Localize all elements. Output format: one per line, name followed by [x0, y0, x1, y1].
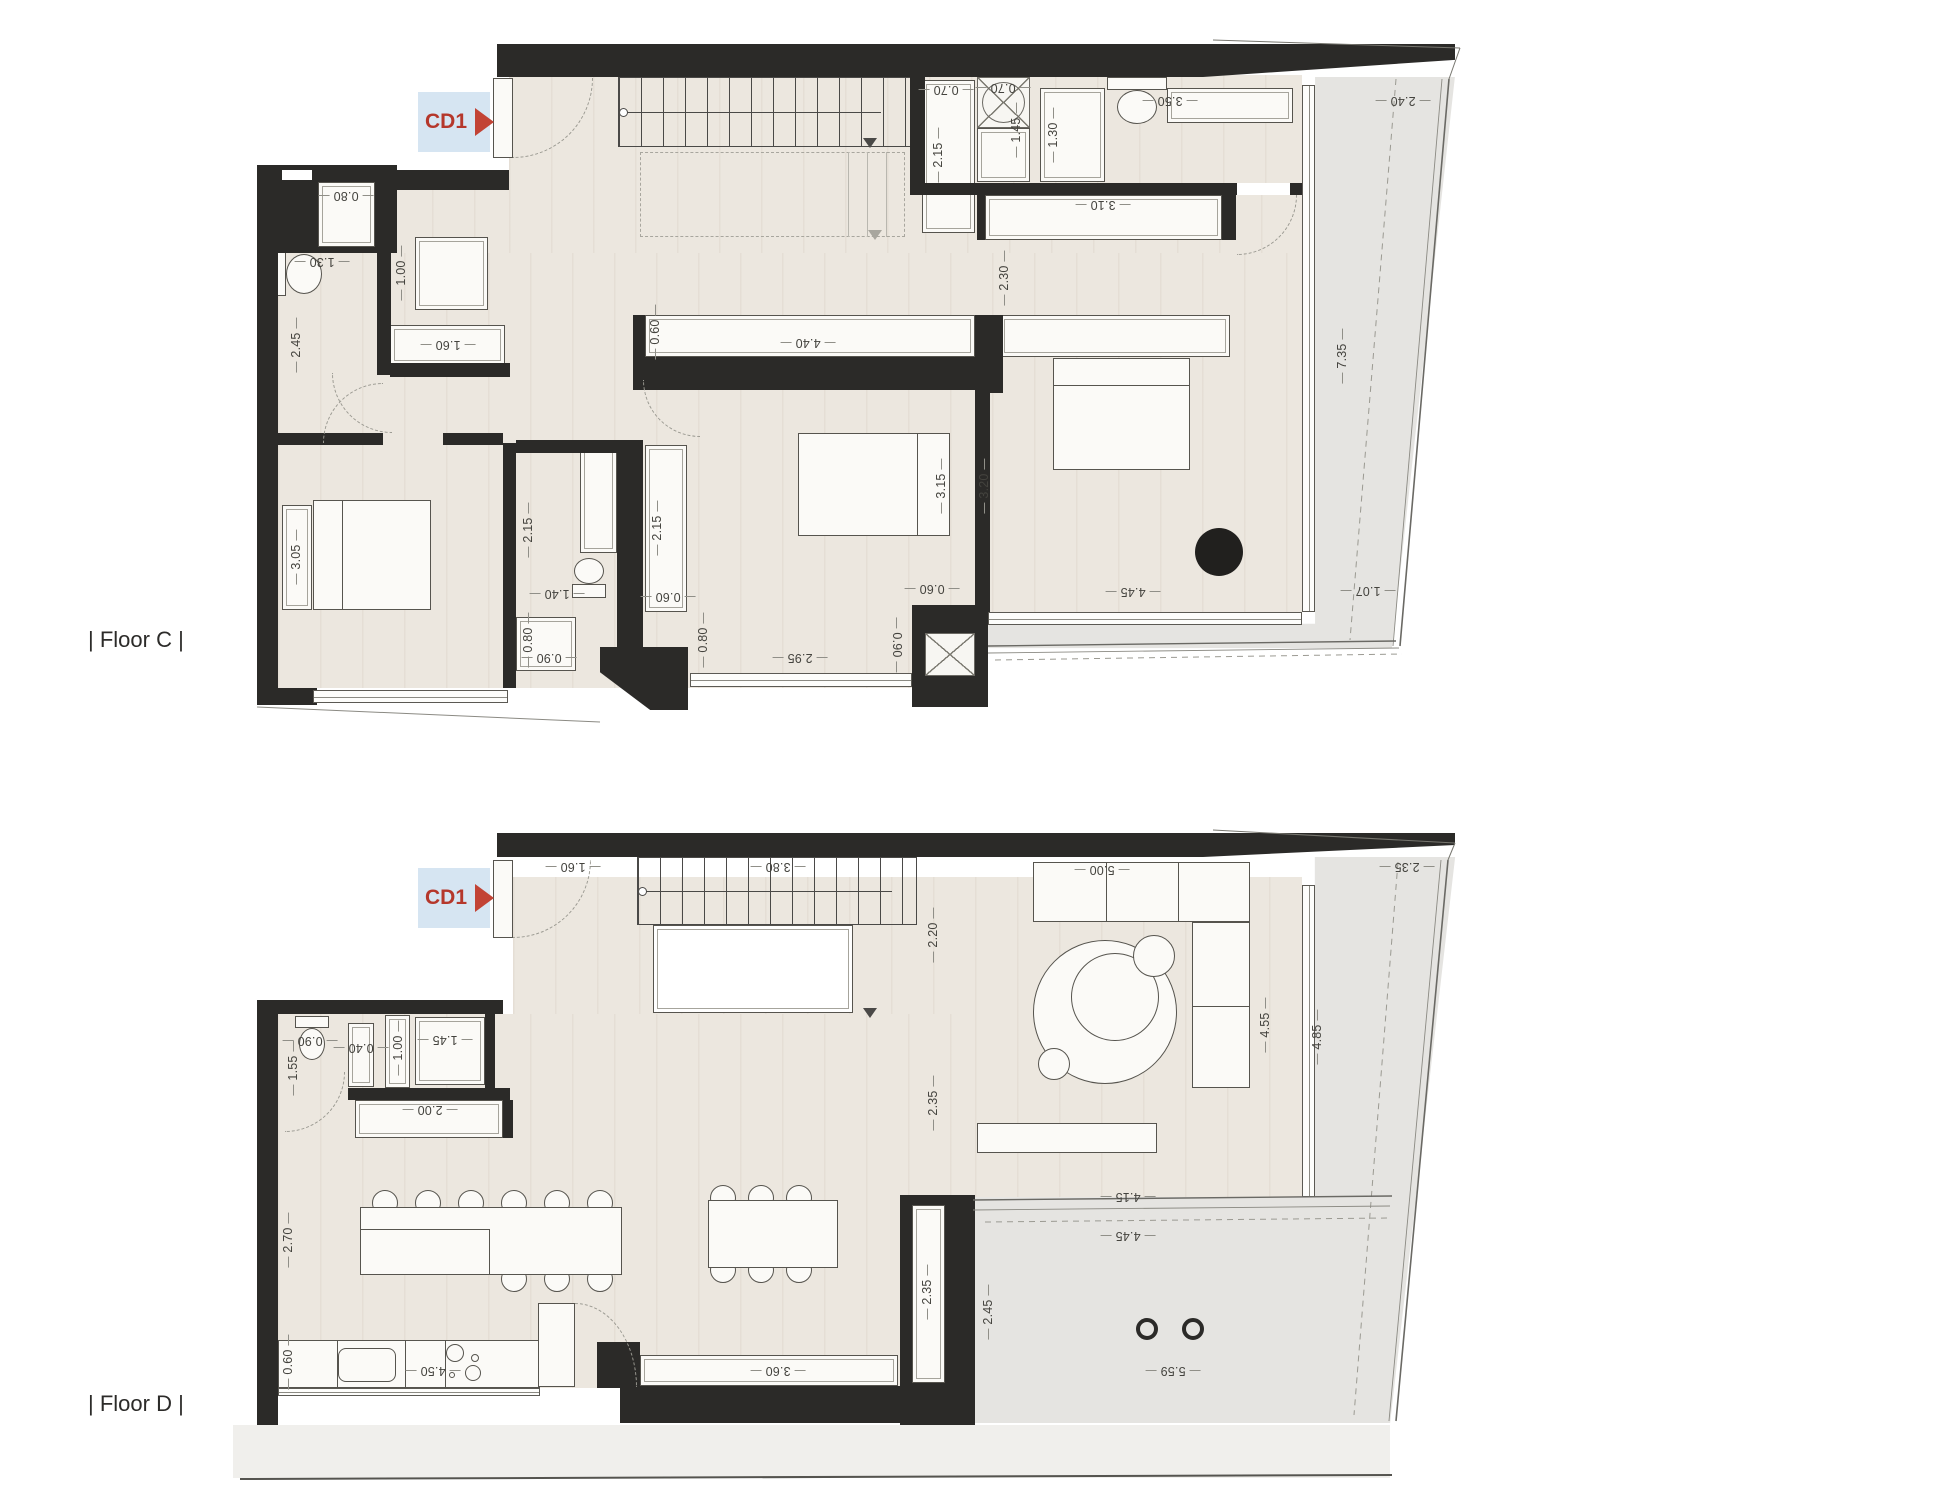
- dimension-label: 4.55: [1258, 997, 1272, 1052]
- pouf: [1195, 528, 1243, 576]
- dimension-label: 3.80: [750, 860, 805, 874]
- wall: [497, 44, 1203, 77]
- bed: [313, 500, 431, 610]
- shaft: [348, 1023, 374, 1087]
- window: [988, 612, 1302, 625]
- wall: [390, 363, 510, 377]
- dimension-label: 1.07: [1340, 584, 1395, 598]
- wall: [257, 688, 317, 705]
- wall: [257, 1000, 278, 1425]
- bed: [1053, 358, 1190, 470]
- dimension-label: 2.15: [931, 127, 945, 182]
- window: [278, 1388, 540, 1396]
- side-table: [1038, 1048, 1070, 1080]
- dimension-label: 2.35: [926, 1075, 940, 1130]
- dimension-label: 0.80: [318, 189, 373, 203]
- dimension-label: 1.30: [1046, 107, 1060, 162]
- stair-rail: [623, 112, 881, 113]
- dimension-label: 2.70: [281, 1212, 295, 1267]
- dimension-label: 2.30: [997, 250, 1011, 305]
- dimension-label: 0.80: [696, 612, 710, 667]
- wall: [600, 647, 688, 710]
- dimension-label: 2.15: [650, 500, 664, 555]
- door-leaf: [538, 1303, 575, 1387]
- dimension-label: 2.35: [920, 1264, 934, 1319]
- dimension-label: 2.40: [1375, 94, 1430, 108]
- dimension-label: 2.45: [289, 317, 303, 372]
- wall: [1290, 183, 1302, 195]
- ground-strip: [233, 1425, 1390, 1478]
- dimension-label: 1.00: [394, 245, 408, 300]
- dimension-label: 5.00: [1074, 863, 1129, 877]
- sofa: [1033, 862, 1250, 922]
- dimension-label: 3.10: [1075, 198, 1130, 212]
- dimension-label: 4.15: [1100, 1190, 1155, 1204]
- wall: [390, 170, 509, 190]
- dimension-label: 1.45: [417, 1033, 472, 1047]
- dimension-label: 2.00: [402, 1103, 457, 1117]
- dimension-label: 7.35: [1335, 328, 1349, 383]
- cooktop-burner: [471, 1354, 479, 1362]
- wall: [1203, 44, 1455, 77]
- wall: [443, 433, 503, 445]
- wall: [1203, 833, 1455, 857]
- dimension-label: 4.85: [1310, 1009, 1324, 1064]
- floor-d-label: | Floor D |: [88, 1391, 184, 1417]
- side-table: [1133, 935, 1175, 977]
- staircase: [618, 77, 913, 147]
- wall: [377, 253, 391, 375]
- shower-enclosure: [922, 80, 975, 233]
- wall: [503, 1100, 513, 1138]
- bed-pillow: [1053, 358, 1190, 386]
- wall: [925, 183, 1237, 195]
- kitchen-sink: [338, 1348, 396, 1382]
- window: [313, 690, 508, 703]
- dimension-label: 0.60: [648, 304, 662, 359]
- dimension-label: 4.45: [1105, 585, 1160, 599]
- cooktop-burner: [465, 1365, 481, 1381]
- wall: [620, 1386, 970, 1423]
- sofa-chaise: [1192, 922, 1250, 1088]
- floor-c-label: | Floor C |: [88, 627, 184, 653]
- wall: [503, 443, 516, 688]
- wall: [617, 443, 643, 648]
- closet: [415, 237, 488, 310]
- door-leaf: [493, 78, 513, 158]
- dimension-label: 0.60: [904, 582, 959, 596]
- dimension-label: 0.70: [918, 83, 973, 97]
- dimension-label: 4.45: [1100, 1229, 1155, 1243]
- door-leaf: [493, 860, 513, 938]
- dimension-label: 1.45: [1009, 102, 1023, 157]
- section-marker-label: CD1: [425, 110, 467, 134]
- toilet-tank: [295, 1016, 329, 1028]
- dimension-label: 2.35: [1379, 860, 1434, 874]
- terrace-spotlight: [1136, 1318, 1158, 1340]
- tv-sideboard: [977, 1123, 1157, 1153]
- wall: [975, 315, 1003, 393]
- bathroom-vanity: [580, 443, 617, 553]
- section-marker-label: CD1: [425, 886, 467, 910]
- floorplan-canvas: CD1 | Floor C | 0.801.301.001.602.453.05…: [0, 0, 1936, 1486]
- dimension-label: 1.60: [545, 860, 600, 874]
- dimension-label: 0.40: [333, 1041, 388, 1055]
- dimension-label: 1.30: [294, 255, 349, 269]
- kitchen-island-counter: [360, 1229, 490, 1275]
- cooktop-burner: [446, 1344, 464, 1362]
- wall: [348, 1088, 510, 1100]
- wardrobe: [1000, 315, 1230, 357]
- stair-rail-knob: [638, 887, 647, 896]
- window: [690, 673, 912, 687]
- dining-table: [708, 1200, 838, 1268]
- dimension-label: 1.60: [420, 338, 475, 352]
- dimension-label: 3.20: [977, 458, 991, 513]
- sofa-cushion-line: [1178, 863, 1179, 921]
- toilet-bowl: [574, 558, 604, 584]
- dimension-label: 2.95: [772, 651, 827, 665]
- dimension-label: 2.45: [981, 1284, 995, 1339]
- dimension-label: 5.59: [1145, 1364, 1200, 1378]
- stair-void: [653, 925, 853, 1013]
- dimension-label: 3.05: [289, 529, 303, 584]
- stair-direction-arrow-icon: [863, 138, 877, 148]
- shaft: [925, 633, 975, 676]
- section-marker-cd1[interactable]: CD1: [418, 92, 490, 152]
- wall: [497, 833, 1203, 857]
- stair-down-arrow-icon: [863, 1008, 877, 1018]
- dimension-label: 0.90: [521, 651, 576, 665]
- dimension-label: 1.55: [286, 1040, 300, 1095]
- sofa-cushion-line: [1193, 1006, 1249, 1007]
- wall: [1222, 195, 1236, 240]
- dimension-label: 4.50: [405, 1364, 460, 1378]
- toilet-tank: [1107, 77, 1167, 90]
- dimension-label: 0.60: [281, 1334, 295, 1389]
- stair-rail-knob: [619, 108, 628, 117]
- wall: [633, 315, 645, 359]
- dimension-label: 3.15: [934, 458, 948, 513]
- wall-niche: [282, 170, 312, 180]
- stair-ghost-treads: [848, 152, 905, 237]
- wall: [485, 1014, 495, 1088]
- wall: [257, 1000, 503, 1014]
- stair-down-arrow-icon: [868, 230, 882, 240]
- bed-pillow: [313, 500, 343, 610]
- wall: [977, 195, 985, 240]
- dimension-label: 2.20: [926, 907, 940, 962]
- section-arrow-icon: [475, 884, 494, 912]
- terrace-spotlight: [1182, 1318, 1204, 1340]
- stair-rail: [642, 891, 892, 892]
- section-marker-cd1[interactable]: CD1: [418, 868, 490, 928]
- dimension-label: 0.70: [975, 81, 1030, 95]
- dimension-label: 4.40: [780, 336, 835, 350]
- bed: [798, 433, 950, 536]
- closet: [415, 1017, 485, 1085]
- dimension-label: 3.50: [1142, 94, 1197, 108]
- dimension-label: 0.90: [890, 617, 904, 672]
- dimension-label: 3.60: [750, 1364, 805, 1378]
- dimension-label: 0.60: [640, 590, 695, 604]
- kitchen-island: [360, 1207, 622, 1275]
- section-arrow-icon: [475, 108, 494, 136]
- dimension-label: 1.00: [391, 1020, 405, 1075]
- window: [1302, 85, 1315, 612]
- dimension-label: 2.15: [521, 502, 535, 557]
- dimension-label: 1.40: [529, 587, 584, 601]
